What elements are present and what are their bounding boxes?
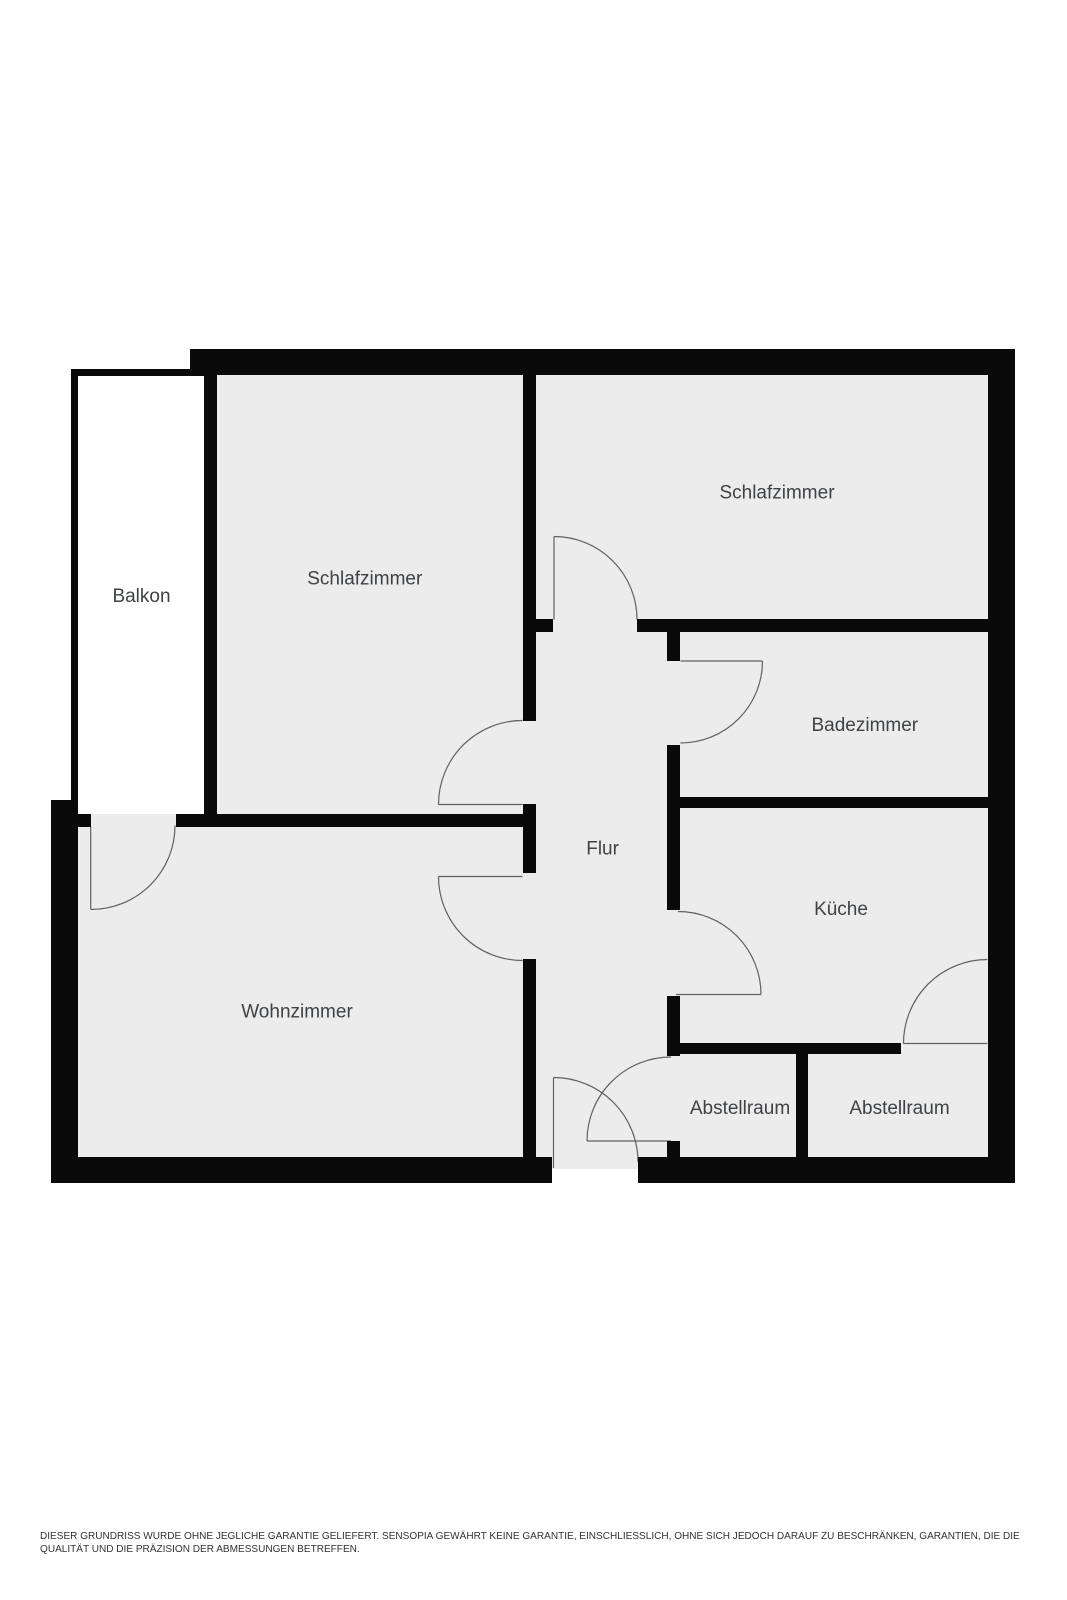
svg-text:Badezimmer: Badezimmer — [811, 715, 918, 736]
svg-text:Küche: Küche — [814, 899, 868, 920]
svg-text:Balkon: Balkon — [112, 586, 170, 607]
svg-text:Schlafzimmer: Schlafzimmer — [719, 483, 835, 504]
svg-text:Schlafzimmer: Schlafzimmer — [307, 569, 423, 590]
svg-text:QUALITÄT UND DIE PRÄZISION DER: QUALITÄT UND DIE PRÄZISION DER ABMESSUNG… — [40, 1543, 360, 1555]
svg-text:Flur: Flur — [586, 839, 619, 860]
svg-text:Abstellraum: Abstellraum — [690, 1098, 790, 1119]
svg-text:Abstellraum: Abstellraum — [849, 1098, 949, 1119]
svg-text:DIESER GRUNDRISS WURDE OHNE JE: DIESER GRUNDRISS WURDE OHNE JEGLICHE GAR… — [40, 1530, 1020, 1542]
svg-text:Wohnzimmer: Wohnzimmer — [241, 1002, 353, 1023]
